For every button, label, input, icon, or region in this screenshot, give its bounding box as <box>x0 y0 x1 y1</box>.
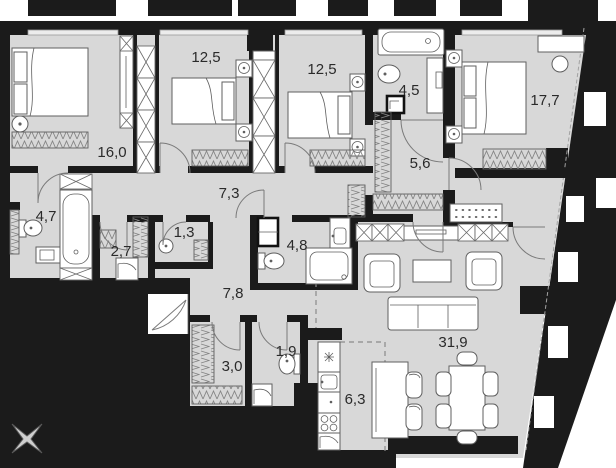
area-label: 17,7 <box>530 92 559 109</box>
wardrobe-shelf-icon <box>12 132 88 148</box>
tv-console-icon <box>404 226 458 240</box>
wardrobe-icon <box>133 217 148 257</box>
fridge-icon <box>318 342 340 372</box>
closet-column-icon <box>137 46 155 173</box>
nightstand-icon <box>12 116 28 132</box>
counter-icon <box>318 392 340 413</box>
stove-icon <box>318 413 340 433</box>
wardrobe-icon <box>192 325 214 383</box>
area-label: 7,8 <box>223 285 244 302</box>
shoe-cabinet-icon <box>450 204 502 222</box>
area-label: 16,0 <box>97 144 126 161</box>
area-label: 1,9 <box>276 343 297 360</box>
wardrobe-icon <box>192 386 242 404</box>
cabinet-icon <box>427 58 443 113</box>
floor-plan-drawing: 16,0 12,5 12,5 4,5 17,7 5,6 7,3 4,7 1,3 … <box>0 0 616 468</box>
area-label: 31,9 <box>438 334 467 351</box>
area-label: 4,8 <box>287 237 308 254</box>
wardrobe-icon <box>375 112 391 192</box>
entrance-door <box>148 294 188 334</box>
area-label: 12,5 <box>307 61 336 78</box>
area-label: 4,5 <box>399 82 420 99</box>
bathtub-icon <box>60 190 92 268</box>
washing-machine-icon <box>116 258 138 280</box>
cabinet-icon <box>258 218 278 246</box>
wardrobe-icon <box>373 194 443 210</box>
closet-column-icon <box>253 51 275 173</box>
wardrobe-icon <box>348 185 365 217</box>
dining-table-icon <box>449 366 485 430</box>
mirror-icon <box>552 56 568 72</box>
area-label: 5,6 <box>410 155 431 172</box>
area-label: 6,3 <box>345 391 366 408</box>
area-label: 1,3 <box>174 224 195 241</box>
window-icon <box>28 30 562 35</box>
floor-plan: 16,0 12,5 12,5 4,5 17,7 5,6 7,3 4,7 1,3 … <box>0 0 616 468</box>
shelf-icon <box>10 210 19 254</box>
toilet-icon <box>258 253 284 269</box>
dresser-icon <box>538 36 584 52</box>
single-bed-icon <box>172 78 236 124</box>
radiator-icon <box>483 149 546 169</box>
radiator-icon <box>192 150 248 166</box>
coffee-table-icon <box>413 260 451 282</box>
area-label: 3,0 <box>222 358 243 375</box>
shelf-icon <box>194 240 208 260</box>
washing-machine-icon <box>252 384 272 406</box>
kitchen-island-icon <box>372 362 408 438</box>
sofa-icon <box>388 297 478 330</box>
sink-icon <box>378 65 400 83</box>
bathtub-icon <box>378 29 444 55</box>
radiator-icon <box>310 150 365 166</box>
cabinet-icon <box>318 433 340 450</box>
single-bed-icon <box>288 92 352 138</box>
double-bed-icon <box>12 48 88 116</box>
tall-wardrobe-icon <box>120 36 133 128</box>
shower-icon <box>306 248 352 284</box>
area-label: 4,7 <box>36 208 57 225</box>
area-label: 2,7 <box>111 243 132 260</box>
area-label: 12,5 <box>191 49 220 66</box>
sink-icon <box>36 247 60 263</box>
double-bed-icon <box>462 62 526 134</box>
kitchen-sink-icon <box>318 372 340 392</box>
area-label: 7,3 <box>219 185 240 202</box>
